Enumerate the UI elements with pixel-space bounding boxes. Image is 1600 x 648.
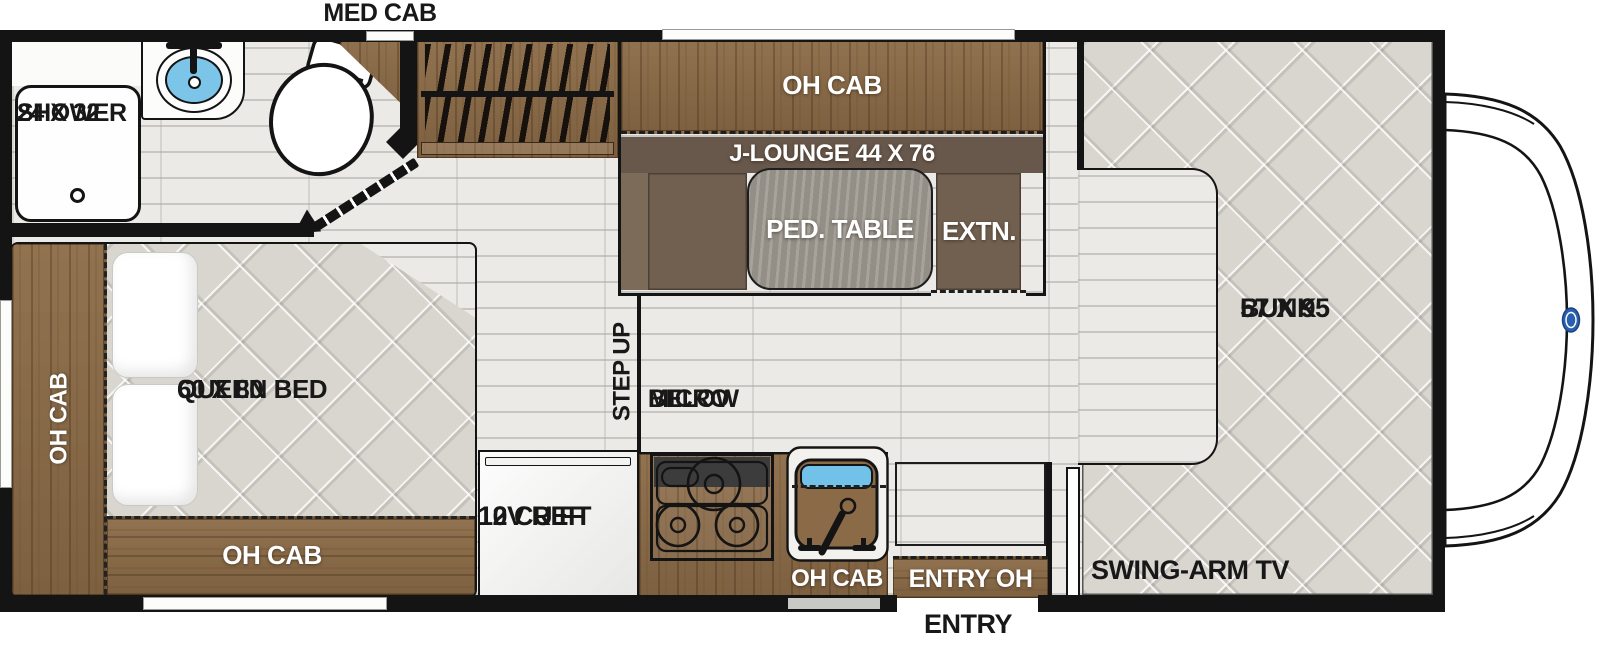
swing-arm-tv-label: SWING-ARM TV <box>1088 556 1292 585</box>
kitchen-oh-cab-dashed-line <box>792 485 886 488</box>
bunk-wall-left <box>1077 30 1084 170</box>
lounge-slide-marker <box>662 29 1015 40</box>
wall-bottom-right <box>1038 595 1445 612</box>
truck-cab <box>1440 28 1600 614</box>
bedroom-oh-cab-left-label: OH CAB <box>46 314 71 524</box>
bedroom-slide: OH CAB QUEEN BED60 X 80 OH CAB <box>10 242 477 598</box>
wardrobe-slats-top <box>425 44 610 91</box>
lounge-oh-cab-label: OH CAB <box>721 72 943 100</box>
exterior-step <box>788 598 880 609</box>
stove-cooktop <box>650 453 774 561</box>
step-up-label: STEP UP <box>609 316 634 428</box>
step-edge <box>637 296 641 456</box>
bunk-floor-notch <box>1078 168 1218 465</box>
kitchen-sink <box>786 446 890 564</box>
pedestal-table-label: PED. TABLE <box>757 216 923 244</box>
wardrobe-cabinet <box>417 38 618 158</box>
fridge-top-strip <box>485 457 631 466</box>
lounge-slide: OH CAB J-LOUNGE 44 X 76 PED. TABLE EXTN. <box>618 38 1046 296</box>
entry-label: ENTRY <box>903 610 1033 639</box>
lounge-arm <box>621 173 648 290</box>
kitchen-oh-cab-label: OH CAB <box>784 566 890 591</box>
wardrobe-slats-bottom <box>425 97 610 142</box>
med-cab-marker <box>366 31 414 41</box>
lounge-seat-left <box>648 173 747 290</box>
bedroom-oh-cab-bottom-label: OH CAB <box>162 542 382 570</box>
rv-floorplan: SHOWER24 X 32 OH CAB QUEEN BED60 X 80 <box>0 0 1600 648</box>
j-lounge-label: J-LOUNGE 44 X 76 <box>701 141 963 166</box>
bathroom-wall-bottom <box>0 223 314 237</box>
extension-seat-label: EXTN. <box>934 218 1024 246</box>
bathroom-vanity-return <box>12 42 144 86</box>
shower-drain-icon <box>70 188 85 203</box>
entry-oh-label: ENTRY OH <box>893 566 1048 593</box>
bathroom-sink-drain <box>188 76 201 89</box>
bedroom-slide-marker <box>143 597 387 610</box>
extension-fold-dashes <box>931 290 1026 298</box>
med-cab-label: MED CAB <box>316 0 444 27</box>
wardrobe-base-strip <box>421 142 614 155</box>
swing-arm-tv <box>1066 467 1080 598</box>
pillow <box>112 252 198 378</box>
bathroom-faucet-spout <box>190 46 197 74</box>
bedroom-window-marker <box>0 300 12 488</box>
entry-landing <box>895 462 1046 546</box>
